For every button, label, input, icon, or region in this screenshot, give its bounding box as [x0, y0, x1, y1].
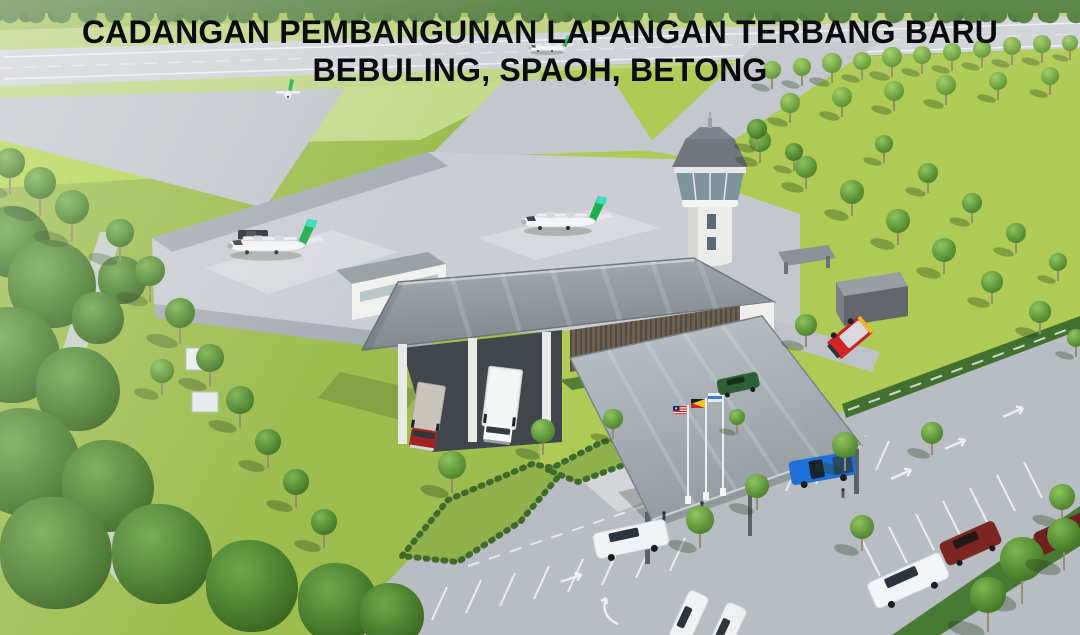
title-line-2: BEBULING, SPAOH, BETONG [0, 52, 1080, 90]
title-overlay: CADANGAN PEMBANGUNAN LAPANGAN TERBANG BA… [0, 14, 1080, 90]
sarawak-flag [691, 399, 705, 408]
left-access-road [26, 232, 140, 582]
state-flag [708, 393, 722, 402]
malaysia-flag [673, 406, 687, 415]
title-line-1: CADANGAN PEMBANGUNAN LAPANGAN TERBANG BA… [0, 14, 1080, 52]
utility-buildings [186, 348, 218, 412]
airport-aerial-rendering: CADANGAN PEMBANGUNAN LAPANGAN TERBANG BA… [0, 0, 1080, 635]
taxiway-left [0, 88, 345, 208]
scene-rendering [0, 0, 1080, 635]
